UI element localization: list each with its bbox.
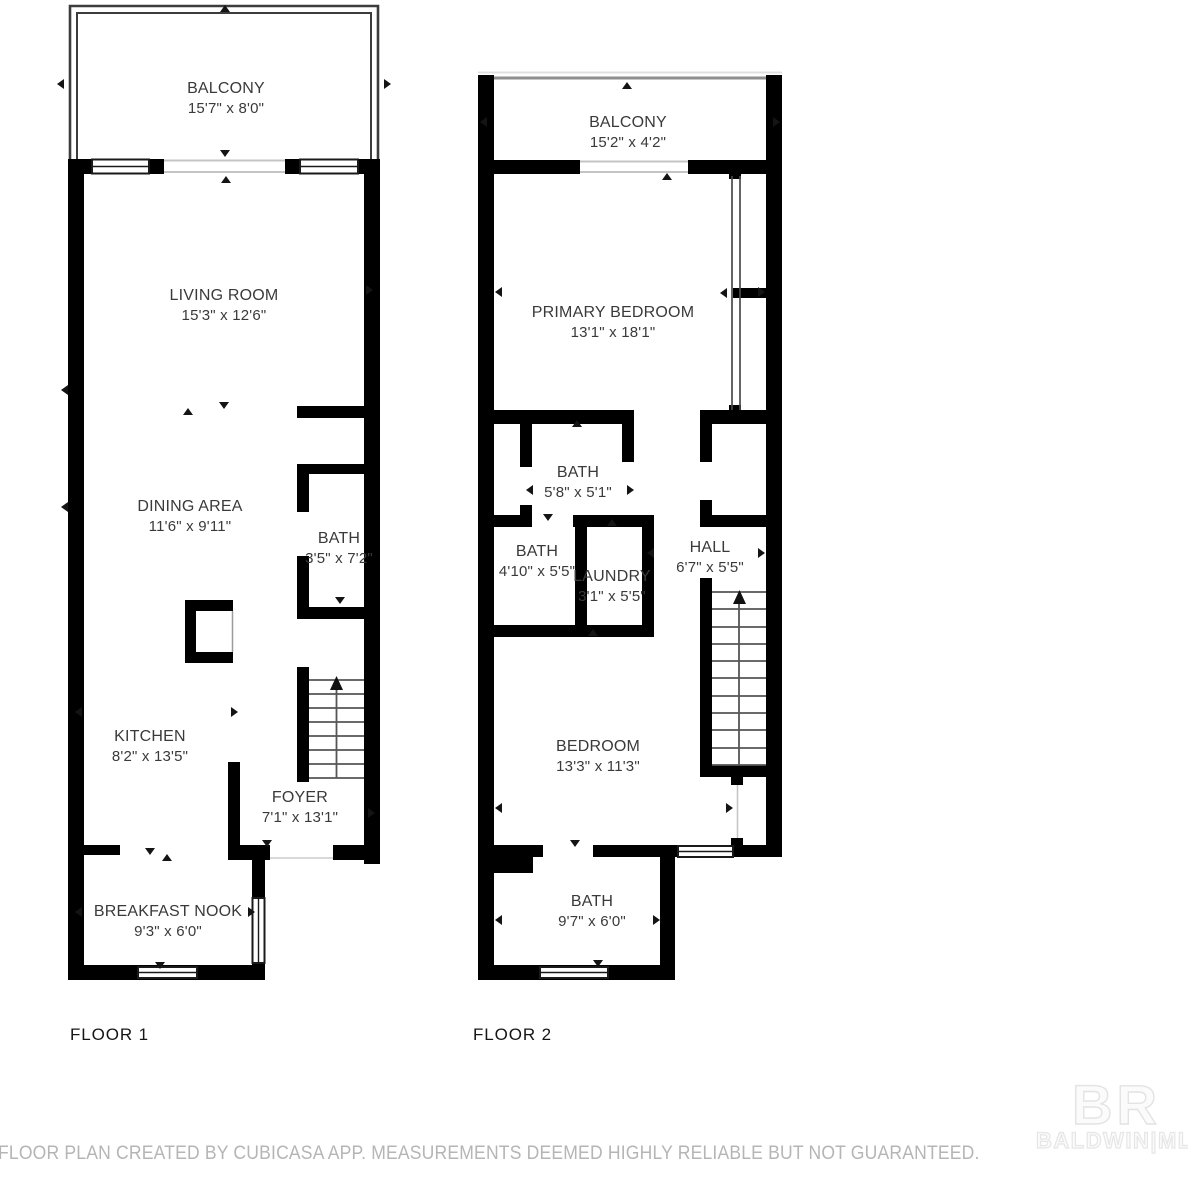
room-label-bedroom: BEDROOM 13'3" x 11'3" (556, 736, 640, 777)
floor1-label: FLOOR 1 (70, 1025, 149, 1045)
floor2-label: FLOOR 2 (473, 1025, 552, 1045)
floor1-kitchen-island (185, 600, 233, 663)
room-label-breakfast-nook: BREAKFAST NOOK 9'3" x 6'0" (94, 901, 242, 942)
room-label-primary-bedroom: PRIMARY BEDROOM 13'1" x 18'1" (532, 302, 694, 343)
room-label-kitchen: KITCHEN 8'2" x 13'5" (112, 726, 188, 767)
room-label-bath-upper-f2: BATH 5'8" x 5'1" (544, 462, 612, 503)
room-label-balcony-f1: BALCONY 15'7" x 8'0" (187, 78, 265, 119)
room-label-bath-f1: BATH 3'5" x 7'2" (305, 528, 373, 569)
room-label-dining-area: DINING AREA 11'6" x 9'11" (137, 496, 242, 537)
floor2-balcony-opening (580, 162, 688, 173)
room-label-bath-mid-f2: BATH 4'10" x 5'5" (499, 541, 575, 582)
room-label-bath-lower-f2: BATH 9'7" x 6'0" (558, 891, 626, 932)
disclaimer-text: FLOOR PLAN CREATED BY CUBICASA APP. MEAS… (0, 1142, 980, 1165)
room-label-laundry: LAUNDRY 3'1" x 5'5" (573, 566, 651, 607)
floor2-stairs (712, 590, 766, 765)
room-label-hall: HALL 6'7" x 5'5" (676, 537, 744, 578)
floor1-walls (68, 159, 380, 980)
room-label-balcony-f2: BALCONY 15'2" x 4'2" (589, 112, 667, 153)
baldwin-mls-wordmark: BALDWIN|MLS (1036, 1128, 1188, 1154)
floor2-balcony-railing (478, 73, 782, 79)
room-label-foyer: FOYER 7'1" x 13'1" (262, 787, 338, 828)
floor1-stairs (309, 676, 364, 778)
floor1-balcony-opening (164, 158, 285, 175)
door-markers (57, 5, 780, 969)
room-label-living-room: LIVING ROOM 15'3" x 12'6" (170, 285, 279, 326)
floor2-walls (478, 75, 782, 980)
